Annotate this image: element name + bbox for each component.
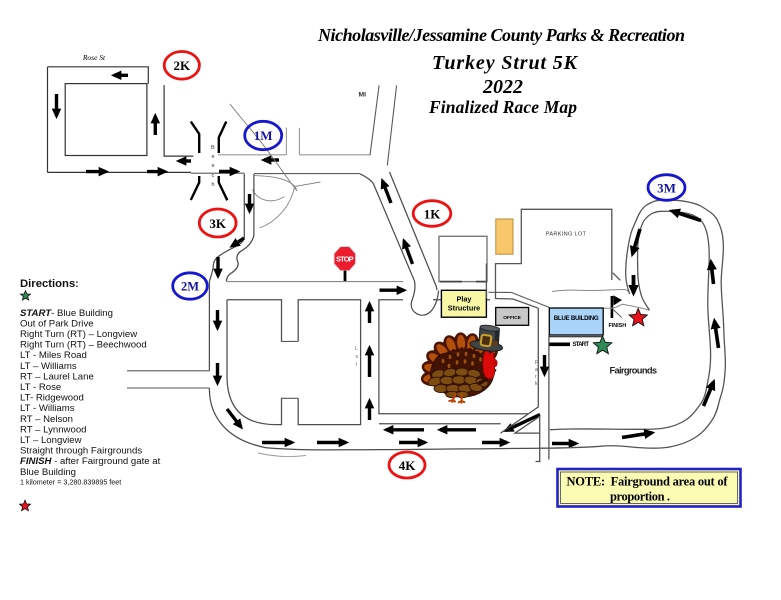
svg-text:START- Blue Building: START- Blue Building	[20, 308, 113, 319]
svg-text:3K: 3K	[209, 216, 227, 231]
svg-text:e: e	[212, 163, 215, 169]
svg-text:Out of Park Drive: Out of Park Drive	[20, 318, 94, 329]
svg-text:NOTE: Fairground area out of: NOTE: Fairground area out of	[567, 475, 729, 489]
svg-text:LT - Miles Road: LT - Miles Road	[20, 350, 87, 361]
svg-text:LT - Williams: LT - Williams	[20, 403, 75, 414]
svg-text:Finalized Race Map: Finalized Race Map	[428, 97, 577, 117]
svg-text:Turkey Strut 5K: Turkey Strut 5K	[432, 52, 579, 74]
svg-text:MI: MI	[359, 92, 367, 99]
svg-text:RT – Lynnwood: RT – Lynnwood	[20, 424, 87, 435]
svg-text:OFFICE: OFFICE	[503, 315, 521, 321]
svg-text:1K: 1K	[424, 206, 442, 221]
svg-text:LT - Rose: LT - Rose	[20, 382, 61, 393]
svg-text:2022: 2022	[482, 76, 523, 98]
svg-text:FINISH: FINISH	[609, 323, 627, 329]
svg-text:Right Turn (RT) – Beechwood: Right Turn (RT) – Beechwood	[20, 340, 147, 351]
svg-text:Blue Building: Blue Building	[20, 467, 76, 478]
svg-text:4K: 4K	[399, 458, 417, 473]
svg-text:Nicholasville/Jessamine County: Nicholasville/Jessamine County Parks & R…	[317, 25, 685, 45]
svg-text:START: START	[573, 342, 590, 348]
svg-text:Straight through Fairgrounds: Straight through Fairgrounds	[20, 446, 142, 457]
svg-text:L: L	[355, 346, 358, 352]
svg-text:Structure: Structure	[448, 304, 480, 313]
svg-text:c: c	[212, 173, 215, 179]
svg-text:k: k	[535, 381, 538, 387]
svg-text:BLUE BUILDING: BLUE BUILDING	[554, 315, 599, 322]
svg-text:Fairgrounds: Fairgrounds	[610, 366, 658, 376]
svg-text:3M: 3M	[657, 180, 676, 195]
svg-text:Directions:: Directions:	[20, 278, 79, 290]
svg-text:B: B	[211, 145, 215, 151]
svg-text:2K: 2K	[173, 58, 191, 73]
svg-text:LT- Ridgewood: LT- Ridgewood	[20, 393, 84, 404]
svg-text:Play: Play	[456, 295, 472, 304]
svg-text:s: s	[356, 354, 359, 360]
svg-text:Right Turn (RT) – Longview: Right Turn (RT) – Longview	[20, 329, 137, 340]
svg-text:r: r	[535, 374, 537, 380]
svg-text:e: e	[212, 154, 215, 160]
svg-text:Rose St: Rose St	[82, 53, 106, 62]
svg-text:a: a	[535, 367, 538, 373]
svg-text:t: t	[356, 362, 358, 368]
svg-text:LT – Williams: LT – Williams	[20, 361, 77, 372]
svg-text:1 kilometer = 3,280.839895 fee: 1 kilometer = 3,280.839895 feet	[20, 478, 121, 487]
svg-text:FINISH - after Fairground gate: FINISH - after Fairground gate at	[20, 456, 161, 467]
svg-text:2M: 2M	[181, 280, 199, 294]
svg-text:RT – Laurel Lane: RT – Laurel Lane	[20, 371, 94, 382]
svg-text:1M: 1M	[254, 128, 273, 143]
svg-text:h: h	[212, 182, 215, 188]
svg-text:PARKING LOT: PARKING LOT	[546, 232, 587, 238]
svg-text:STOP: STOP	[336, 254, 354, 263]
svg-text:LT – Longview: LT – Longview	[20, 435, 82, 446]
svg-text:proportion .: proportion .	[610, 490, 670, 504]
svg-text:RT – Nelson: RT – Nelson	[20, 414, 73, 425]
